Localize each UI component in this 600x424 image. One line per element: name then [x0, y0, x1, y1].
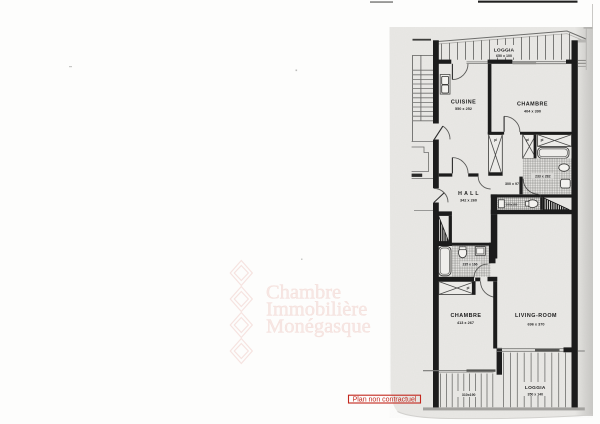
svg-text:310x190: 310x190: [462, 393, 476, 397]
svg-text:413 x 267: 413 x 267: [457, 321, 474, 325]
svg-text:100x165: 100x165: [506, 202, 518, 206]
svg-text:LIVING-ROOM: LIVING-ROOM: [515, 313, 557, 319]
svg-text:CUISINE: CUISINE: [451, 100, 476, 106]
svg-text:Monégasque: Monégasque: [266, 316, 371, 338]
svg-text:pl: pl: [541, 138, 544, 142]
svg-text:HALL: HALL: [458, 191, 481, 197]
svg-text:LOGGIA: LOGGIA: [525, 385, 546, 391]
svg-text:pl: pl: [494, 138, 497, 142]
svg-text:696 x 370: 696 x 370: [528, 323, 545, 327]
svg-text:342 x 260: 342 x 260: [460, 199, 477, 203]
svg-text:404 x 390: 404 x 390: [524, 110, 541, 114]
svg-text:pl: pl: [526, 138, 529, 142]
svg-text:550 x 252: 550 x 252: [455, 107, 472, 111]
svg-text:LOGGIA: LOGGIA: [494, 47, 515, 53]
svg-text:235 x 166: 235 x 166: [462, 262, 477, 266]
svg-text:350 x 140: 350 x 140: [528, 392, 544, 396]
svg-text:233 x 282: 233 x 282: [535, 175, 551, 179]
svg-text:CHAMBRE: CHAMBRE: [450, 313, 481, 319]
svg-text:650 x 100: 650 x 100: [496, 54, 512, 58]
svg-text:300 x 97: 300 x 97: [505, 182, 519, 186]
svg-text:CHAMBRE: CHAMBRE: [517, 102, 548, 108]
svg-text:Plan non contractuel: Plan non contractuel: [353, 396, 417, 403]
svg-text:pl: pl: [467, 286, 470, 290]
